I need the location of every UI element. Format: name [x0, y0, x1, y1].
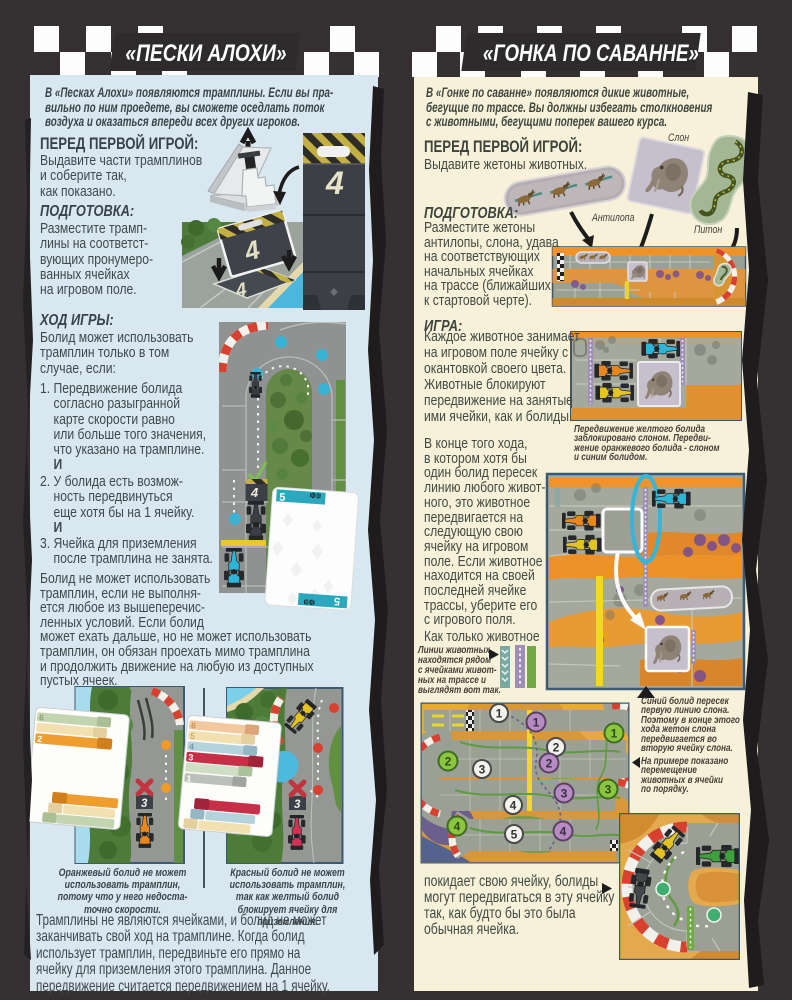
- svg-text:3: 3: [561, 787, 568, 801]
- svg-text:4: 4: [250, 485, 259, 500]
- svg-text:2: 2: [37, 734, 43, 744]
- svg-text:5: 5: [334, 595, 341, 607]
- svg-text:3: 3: [605, 783, 612, 797]
- svg-text:4: 4: [325, 165, 344, 201]
- svg-text:2: 2: [553, 741, 560, 755]
- svg-text:5: 5: [279, 491, 286, 503]
- svg-text:1: 1: [533, 716, 540, 730]
- svg-text:1: 1: [611, 727, 618, 741]
- svg-text:3: 3: [141, 798, 148, 810]
- svg-text:3: 3: [479, 763, 486, 777]
- svg-text:2: 2: [546, 757, 553, 771]
- svg-text:3: 3: [188, 752, 194, 762]
- svg-text:4: 4: [454, 820, 461, 834]
- svg-text:5: 5: [511, 828, 518, 842]
- svg-text:4: 4: [560, 825, 567, 839]
- svg-text:2: 2: [445, 755, 452, 769]
- svg-text:1: 1: [496, 707, 503, 721]
- svg-text:3: 3: [294, 799, 301, 811]
- svg-text:4: 4: [510, 799, 517, 813]
